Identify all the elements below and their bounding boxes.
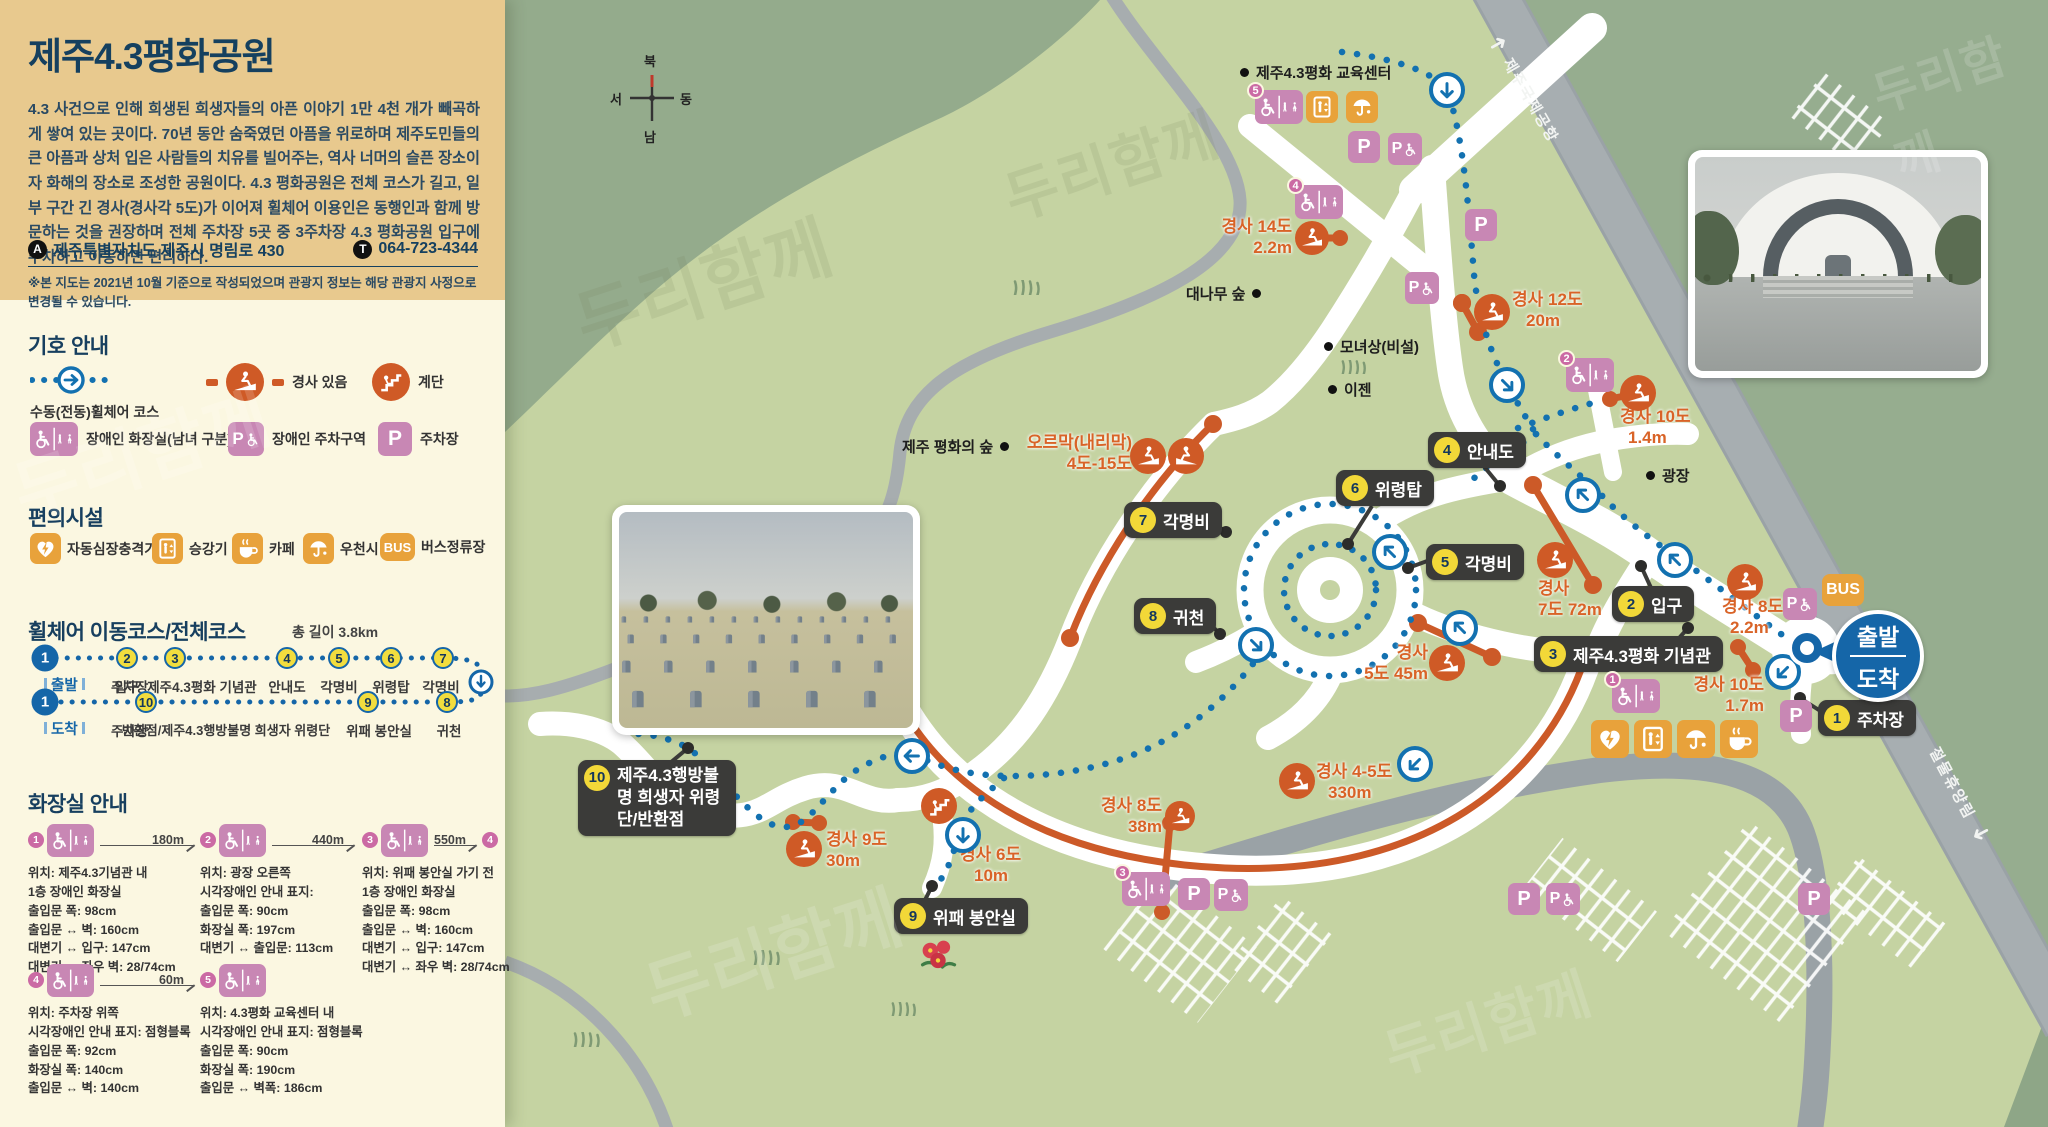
poi-dot xyxy=(1000,442,1009,451)
ramp-icon xyxy=(1165,801,1195,831)
facility-cafe: 카페 xyxy=(232,533,295,564)
restroom-5-badge: 5 xyxy=(1247,82,1264,99)
parking-icon: P xyxy=(378,422,412,456)
stop-3-memorial-hall: 3제주4.3평화 기념관 xyxy=(1534,636,1723,672)
legend-route: 수동(전동)휠체어 코스 xyxy=(30,366,159,422)
bus-stop-icon: BUS xyxy=(1822,574,1864,606)
enshrinement-hall-photo xyxy=(1688,150,1988,378)
course-stop-marker: 3 xyxy=(164,647,186,669)
slope-5deg: 경사5도 45m xyxy=(1330,642,1428,685)
accessible-parking-icon: P xyxy=(1405,272,1439,304)
distance-arrow: 550m xyxy=(434,845,476,846)
gravestones xyxy=(619,512,913,728)
course-stop-label: 위령탑 xyxy=(372,676,409,696)
course-title: 휠체어 이동코스/전체코스 xyxy=(28,616,246,646)
accessible-restroom-icon xyxy=(381,824,428,857)
poi-education-center: 제주4.3평화 교육센터 xyxy=(1240,62,1391,83)
route-arrow-icon xyxy=(1397,746,1433,782)
restroom-2-badge: 2 xyxy=(1558,350,1575,367)
steps xyxy=(1763,276,1913,298)
route-arrow-icon xyxy=(1442,610,1478,646)
accessible-restroom-icon xyxy=(47,964,94,997)
stop-6-memorial-tower: 6위령탑 xyxy=(1336,470,1434,506)
course-stop-label: 제주4.3평화 기념관 xyxy=(147,676,256,696)
slope-bar xyxy=(206,379,218,386)
accessible-restroom-icon xyxy=(219,824,266,857)
legend-parking: P 주차장 xyxy=(378,422,459,456)
route-arrow-icon xyxy=(1657,542,1693,578)
stop-8-gwicheon: 8귀천 xyxy=(1134,598,1216,634)
ramp-icon xyxy=(226,363,264,401)
poi-monyeosang: 모녀상(비설) xyxy=(1324,336,1419,357)
jeju-43-peace-park-map: 위패 봉안실 북 남 서 동 ➜ 제주국제공항 절물휴양림 ➜ 제주4. xyxy=(0,0,2048,1127)
route-arrow-icon xyxy=(1565,477,1601,513)
course-stop-label: 각명비 xyxy=(320,676,357,696)
restroom-next-badge: 4 xyxy=(482,832,498,848)
course-arrive-tag: 도착 xyxy=(40,718,89,739)
poi-bamboo-forest: 대나무 숲 xyxy=(1186,283,1261,304)
elevator-icon xyxy=(152,533,183,564)
stop-number: 10 xyxy=(584,765,610,791)
legend-stairs: 계단 xyxy=(372,363,444,401)
facilities-title: 편의시설 xyxy=(28,502,103,532)
restroom-number-badge: 1 xyxy=(28,832,44,848)
ramp-icon xyxy=(786,831,822,867)
course-total-length: 총 길이 3.8km xyxy=(292,622,378,642)
accessible-restroom-icon: 1 xyxy=(1612,679,1660,713)
ramp-icon xyxy=(1620,375,1656,411)
restroom-number-badge: 5 xyxy=(200,972,216,988)
poi-dot xyxy=(1240,68,1249,77)
accessible-parking-icon: P xyxy=(1214,879,1248,911)
cafe-icon xyxy=(1720,720,1758,758)
slope-14deg: 경사 14도2.2m xyxy=(1180,216,1292,259)
stop-number: 7 xyxy=(1130,507,1156,533)
stop-number: 8 xyxy=(1140,603,1166,629)
accessible-restroom-icon: 3 xyxy=(1122,872,1170,906)
course-stop-marker: 4 xyxy=(276,647,298,669)
restroom-3-badge: 3 xyxy=(1114,864,1131,881)
course-stop-label: 입구 xyxy=(115,676,140,696)
poi-dot xyxy=(1646,471,1655,480)
stairs-icon xyxy=(372,363,410,401)
restroom-specs: 위치: 제주4.3기념관 내1층 장애인 화장실 출입문 폭: 98cm출입문 … xyxy=(28,864,198,977)
course-stop-marker: 5 xyxy=(328,647,350,669)
stop-9-tablet-hall: 9위패 봉안실 xyxy=(894,898,1028,934)
compass-west: 서 xyxy=(610,89,622,108)
slope-9deg: 경사 9도30m xyxy=(826,829,887,872)
distance-arrow: 440m xyxy=(272,845,354,846)
phone: T 064-723-4344 xyxy=(353,240,478,259)
restroom-4-badge: 4 xyxy=(1287,177,1304,194)
umbrella-icon xyxy=(1346,91,1378,123)
ramp-icon xyxy=(1537,542,1573,578)
parking-icon: P xyxy=(1780,700,1812,732)
course-stop-marker: 10 xyxy=(135,691,157,713)
compass: 북 남 서 동 xyxy=(608,55,694,141)
route-arrow-icon xyxy=(1489,367,1525,403)
accessible-parking-icon: P xyxy=(1546,883,1580,915)
phone-icon: T xyxy=(353,240,372,259)
stop-number: 6 xyxy=(1342,475,1368,501)
ramp-down-icon xyxy=(1168,438,1204,474)
intro-panel: 제주4.3평화공원 4.3 사건으로 인해 희생된 희생자들의 아픈 이야기 1… xyxy=(0,0,505,300)
slope-10deg-b: 경사 10도1.7m xyxy=(1688,674,1764,717)
restroom-number-badge: 3 xyxy=(362,832,378,848)
slope-12deg: 경사 12도20m xyxy=(1512,289,1583,332)
accessible-parking-icon: P xyxy=(228,422,264,456)
course-stop-marker: 1 xyxy=(32,645,59,672)
restroom-number-badge: 4 xyxy=(28,972,44,988)
accessible-parking-icon: P xyxy=(1388,133,1422,165)
slope-uphill: 오르막(내리막)4도-15도 xyxy=(1020,432,1132,475)
parking-icon: P xyxy=(1798,883,1830,915)
aed-icon xyxy=(30,533,61,564)
ramp-icon xyxy=(1279,763,1315,799)
stop-number: 4 xyxy=(1434,437,1460,463)
facility-aed: 자동심장충격기 xyxy=(30,533,157,564)
bus-stop-icon: BUS xyxy=(380,533,415,561)
ramp-icon xyxy=(1727,564,1763,600)
stairs-icon xyxy=(921,788,957,824)
stop-1-parking: 1주차장 xyxy=(1818,700,1916,736)
distance-arrow: 60m xyxy=(100,985,194,986)
elevator-icon xyxy=(1634,720,1672,758)
route-arrow-icon xyxy=(894,738,930,774)
route-arrow-icon xyxy=(945,817,981,853)
umbrella-icon xyxy=(1677,720,1715,758)
ramp-up-icon xyxy=(1130,438,1166,474)
accessible-restroom-icon xyxy=(219,964,266,997)
course-stop-label: 반환점/제주4.3행방불명 희생자 위령단 xyxy=(122,720,330,739)
poi-plaza: 광장 xyxy=(1646,465,1690,486)
course-stop-label: 귀천 xyxy=(437,720,462,740)
cafe-icon xyxy=(232,533,263,564)
course-stop-marker: 7 xyxy=(432,647,454,669)
aed-icon xyxy=(1591,720,1629,758)
facility-rain: 우천시 xyxy=(303,533,379,564)
umbrella-icon xyxy=(303,533,334,564)
route-arrow-icon xyxy=(1765,654,1801,690)
course-stop-marker: 6 xyxy=(380,647,402,669)
divider xyxy=(28,266,478,267)
stop-number: 5 xyxy=(1432,549,1458,575)
slope-7deg: 경사7도 72m xyxy=(1538,578,1602,621)
slope-8deg-a: 경사 8도38m xyxy=(1096,795,1162,838)
poi-ijen: 이젠 xyxy=(1328,379,1372,400)
route-arrow-icon xyxy=(1372,534,1408,570)
parking-icon: P xyxy=(1465,209,1497,241)
restroom-card-1: 1 180m 위치: 제주4.3기념관 내1층 장애인 화장실 출입문 폭: 9… xyxy=(28,822,198,977)
restroom-card-4: 4 60m 위치: 주차장 위쪽시각장애인 안내 표지: 점형블록 출입문 폭:… xyxy=(28,962,198,1098)
restroom-card-2: 2 440m 위치: 광장 오른쪽시각장애인 안내 표지: 출입문 폭: 90c… xyxy=(200,822,358,958)
cemetery-photo xyxy=(612,505,920,735)
restroom-number-badge: 2 xyxy=(200,832,216,848)
slope-4-5deg: 경사 4-5도330m xyxy=(1316,761,1392,804)
start-finish-badge: 출발도착 xyxy=(1832,610,1924,702)
slope-8deg-b: 경사 8도2.2m xyxy=(1722,596,1783,639)
route-arrow-icon xyxy=(1238,627,1274,663)
map-note: ※본 지도는 2021년 10월 기준으로 작성되었으며 관광지 정보는 해당 … xyxy=(28,272,488,310)
accessible-parking-icon: P xyxy=(1783,588,1817,620)
parking-icon: P xyxy=(1348,131,1380,163)
stop-number: 2 xyxy=(1618,591,1644,617)
park-title: 제주4.3평화공원 xyxy=(28,26,479,80)
legend-restroom: 장애인 화장실(남녀 구분) xyxy=(30,422,232,456)
info-sidebar: 제주4.3평화공원 4.3 사건으로 인해 희생된 희생자들의 아픈 이야기 1… xyxy=(0,0,505,1127)
restroom-card-5: 5 위치: 4.3평화 교육센터 내시각장애인 안내 표지: 점형블록 출입문 … xyxy=(200,962,370,1098)
poi-dot xyxy=(1328,385,1337,394)
stop-number: 3 xyxy=(1540,641,1566,667)
slope-bar xyxy=(272,379,284,386)
course-stop-marker: 9 xyxy=(357,691,379,713)
course-stop-marker: 8 xyxy=(436,691,458,713)
ramp-icon xyxy=(1295,221,1329,255)
address-icon: A xyxy=(28,240,47,259)
course-diagram: 1 2 3 4 5 6 7 출발 주차장 입구 제주4.3평화 기념관 안내도 … xyxy=(0,645,505,740)
legend-slope: 경사 있음 xyxy=(206,363,347,401)
distance-arrow: 180m xyxy=(100,845,194,846)
restroom-specs: 위치: 위패 봉안실 가기 전1층 장애인 화장실 출입문 폭: 98cm출입문… xyxy=(362,864,498,977)
poi-dot xyxy=(1252,289,1261,298)
facility-bus: BUS 버스정류장 xyxy=(380,533,485,561)
course-stop-marker: 2 xyxy=(116,647,138,669)
accessible-restroom-icon: 2 xyxy=(1566,358,1614,392)
stop-number: 9 xyxy=(900,903,926,929)
course-stop-label: 위패 봉안실 xyxy=(346,720,412,740)
compass-north: 북 xyxy=(644,51,656,70)
slope-10deg-a: 경사 10도1.4m xyxy=(1620,406,1691,449)
route-arrow-icon xyxy=(1429,72,1465,108)
restrooms-title: 화장실 안내 xyxy=(28,788,127,818)
course-stop-label: 안내도 xyxy=(268,676,305,696)
parking-icon: P xyxy=(1508,883,1540,915)
stop-5-monument: 5각명비 xyxy=(1426,544,1524,580)
elevator-icon xyxy=(1306,91,1338,123)
address: A 제주특별자치도 제주시 명림로 430 xyxy=(28,237,284,261)
compass-south: 남 xyxy=(644,127,656,146)
accessible-restroom-icon xyxy=(47,824,94,857)
legend-accessible-parking: P 장애인 주차구역 xyxy=(228,422,366,456)
restroom-specs: 위치: 4.3평화 교육센터 내시각장애인 안내 표지: 점형블록 출입문 폭:… xyxy=(200,1004,370,1098)
compass-east: 동 xyxy=(680,89,692,108)
restroom-specs: 위치: 광장 오른쪽시각장애인 안내 표지: 출입문 폭: 90cm화장실 폭:… xyxy=(200,864,358,958)
accessible-restroom-icon: 4 xyxy=(1295,185,1343,219)
ramp-icon xyxy=(1429,645,1465,681)
stop-number: 1 xyxy=(1824,705,1850,731)
stop-10-turnaround: 10제주4.3행방불명 희생자 위령단/반환점 xyxy=(578,760,736,836)
wheelchair-route-icon xyxy=(30,366,112,394)
stop-7-monument: 7각명비 xyxy=(1124,502,1222,538)
stop-4-info-board: 4안내도 xyxy=(1428,432,1526,468)
parking-icon: P xyxy=(1178,878,1210,910)
legend-title: 기호 안내 xyxy=(28,330,109,360)
facility-elevator: 승강기 xyxy=(152,533,228,564)
camellia-flower-icon xyxy=(916,936,960,981)
poi-dot xyxy=(1324,342,1333,351)
poi-peace-forest: 제주 평화의 숲 xyxy=(902,436,1009,457)
accessible-restroom-icon: 5 xyxy=(1255,90,1303,124)
accessible-restroom-icon xyxy=(30,422,78,456)
stop-2-entrance: 2입구 xyxy=(1612,586,1694,622)
ramp-icon xyxy=(1474,294,1510,330)
restroom-card-3: 3 550m 4 위치: 위패 봉안실 가기 전1층 장애인 화장실 출입문 폭… xyxy=(362,822,498,977)
restroom-1-badge: 1 xyxy=(1604,671,1621,688)
course-stop-marker: 1 xyxy=(32,689,59,716)
restroom-specs: 위치: 주차장 위쪽시각장애인 안내 표지: 점형블록 출입문 폭: 92cm화… xyxy=(28,1004,198,1098)
